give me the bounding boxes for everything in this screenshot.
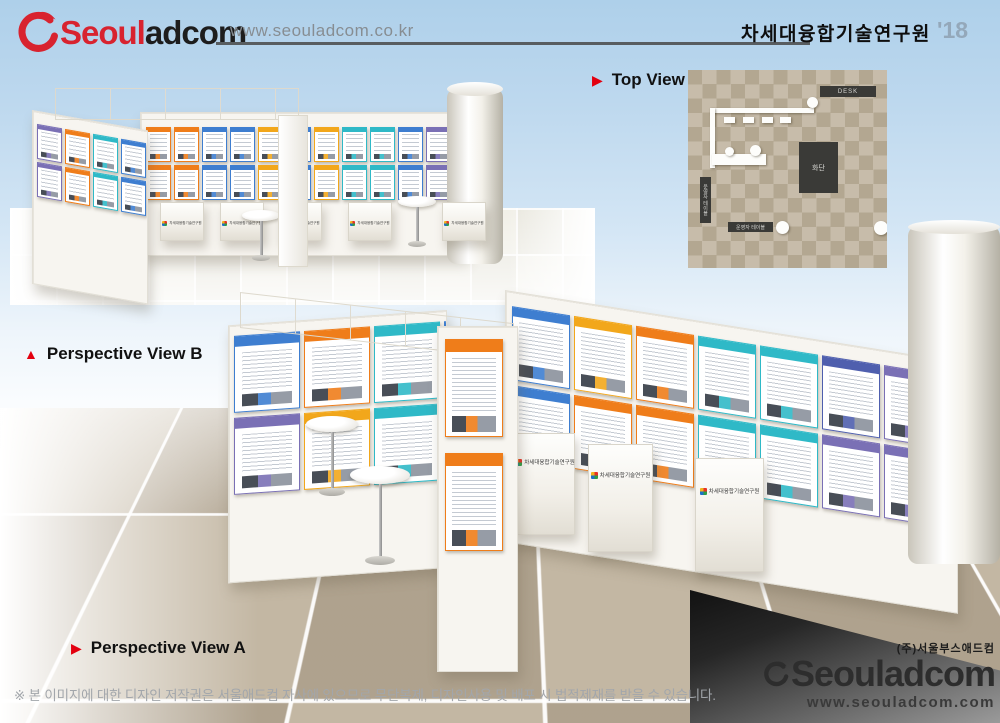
plan-counter — [712, 154, 766, 165]
poster-orange — [65, 129, 90, 168]
institute-logo-icon — [444, 221, 449, 226]
pointer-right-icon: ▶ — [71, 641, 82, 655]
plan-display-stand — [724, 117, 735, 123]
poster-blue — [230, 127, 255, 162]
view-a-label: ▶ Perspective View A — [71, 638, 246, 658]
page: { "header": { "brand_seoul": "Seoul", "b… — [0, 0, 1000, 723]
poster-amber — [314, 165, 339, 200]
plan-wall — [710, 108, 814, 113]
top-view-plan: DESK 화단 운영자 테이블 운영자 테이블 — [688, 70, 887, 268]
brand-seoul: Seoul — [60, 14, 145, 51]
poster-blue — [202, 127, 227, 162]
seouladcom-swoosh-icon — [14, 10, 60, 54]
poster-teal — [342, 165, 367, 200]
poster-purple — [822, 434, 880, 517]
poster-blue — [512, 306, 570, 389]
institute-logo-icon — [222, 221, 227, 226]
view-b-beam — [55, 88, 299, 120]
poster-purple — [37, 162, 62, 201]
poster-orange — [445, 339, 503, 437]
poster-orange — [445, 453, 503, 551]
poster-orange — [146, 165, 171, 200]
poster-orange — [146, 127, 171, 162]
poster-blue — [398, 127, 423, 162]
top-view-label-text: Top View — [612, 70, 685, 90]
poster-blue — [121, 177, 146, 216]
poster-amber — [574, 316, 632, 399]
poster-teal — [370, 127, 395, 162]
institute-logo-icon — [162, 221, 167, 226]
view-b-label: ▲ Perspective View B — [24, 344, 202, 364]
poster-blue — [398, 165, 423, 200]
plan-front-table-label: 운영자 테이블 — [728, 222, 773, 232]
pedestal: 차세대융합기술연구원 — [348, 202, 392, 241]
seouladcom-swoosh-icon — [762, 654, 789, 694]
poster-teal — [93, 134, 118, 173]
year-badge: '18 — [937, 17, 968, 44]
pedestal-label: 차세대융합기술연구원 — [600, 471, 651, 479]
plan-desk: DESK — [820, 86, 876, 97]
header-url: www.seouladcom.co.kr — [230, 21, 414, 41]
view-b-post — [278, 115, 308, 267]
poster-teal — [760, 424, 818, 507]
plan-table-circle — [725, 147, 734, 156]
poster-orange — [636, 326, 694, 409]
institute-logo-icon — [591, 472, 598, 479]
poster-teal — [370, 165, 395, 200]
pedestal-label: 차세대융합기술연구원 — [709, 487, 760, 495]
view-b-label-text: Perspective View B — [47, 344, 203, 364]
copyright-disclaimer: ※ 본 이미지에 대한 디자인 저작권은 서울애드컴 자사에 있으므로 무단복제… — [14, 684, 716, 704]
view-a-label-text: Perspective View A — [91, 638, 246, 658]
watermark-url: www.seouladcom.com — [762, 694, 995, 711]
poster-purple — [37, 124, 62, 163]
watermark-brand: Seouladcom — [791, 656, 995, 692]
poster-blue — [121, 139, 146, 178]
poster-orange — [65, 167, 90, 206]
poster-row — [445, 339, 517, 453]
poster-orange — [174, 165, 199, 200]
view-a-cylinder — [908, 226, 1000, 564]
plan-side-table-label: 운영자 테이블 — [700, 177, 711, 223]
institute-logo-icon — [350, 221, 355, 226]
pointer-up-icon: ▲ — [24, 347, 38, 361]
poster-teal — [93, 172, 118, 211]
institute-logo-icon — [700, 488, 707, 495]
poster-amber — [314, 127, 339, 162]
poster-orange — [174, 127, 199, 162]
page-title: 차세대융합기술연구원 — [741, 19, 931, 46]
poster-teal — [342, 127, 367, 162]
plan-table-circle — [776, 221, 789, 234]
pedestal-label: 차세대융합기술연구원 — [357, 221, 389, 226]
header-rule — [216, 42, 810, 45]
cocktail-table — [398, 196, 436, 247]
pedestal-label: 차세대융합기술연구원 — [524, 458, 575, 466]
pedestal: 차세대융합기술연구원 — [588, 444, 653, 552]
brand-logo: Seouladcom — [60, 14, 246, 52]
plan-planter: 화단 — [799, 142, 838, 193]
plan-display-stand — [743, 117, 754, 123]
pedestal-label: 차세대융합기술연구원 — [169, 221, 201, 226]
poster-navy — [822, 355, 880, 438]
view-a-corner-column — [437, 326, 518, 672]
pedestal: 차세대융합기술연구원 — [695, 458, 764, 572]
plan-table-circle — [874, 221, 887, 235]
poster-blue — [234, 331, 300, 413]
cocktail-table — [350, 466, 410, 565]
watermark: (주)서울부스애드컴 Seouladcom www.seouladcom.com — [762, 640, 995, 711]
plan-display-stand — [762, 117, 773, 123]
pedestal: 차세대융합기술연구원 — [160, 202, 204, 241]
poster-purple — [234, 413, 300, 495]
pedestal-label: 차세대융합기술연구원 — [451, 221, 483, 226]
top-view-label: ▶ Top View — [592, 70, 685, 90]
pedestal: 차세대융합기술연구원 — [442, 202, 486, 241]
poster-teal — [760, 345, 818, 428]
plan-table-circle — [750, 145, 761, 156]
plan-table-circle — [807, 97, 818, 108]
poster-blue — [230, 165, 255, 200]
poster-blue — [202, 165, 227, 200]
cocktail-table — [242, 210, 280, 261]
pedestal: 차세대융합기술연구원 — [515, 433, 575, 535]
poster-teal — [698, 336, 756, 419]
poster-row — [445, 453, 517, 567]
plan-display-stand — [780, 117, 791, 123]
pointer-right-icon: ▶ — [592, 73, 603, 87]
